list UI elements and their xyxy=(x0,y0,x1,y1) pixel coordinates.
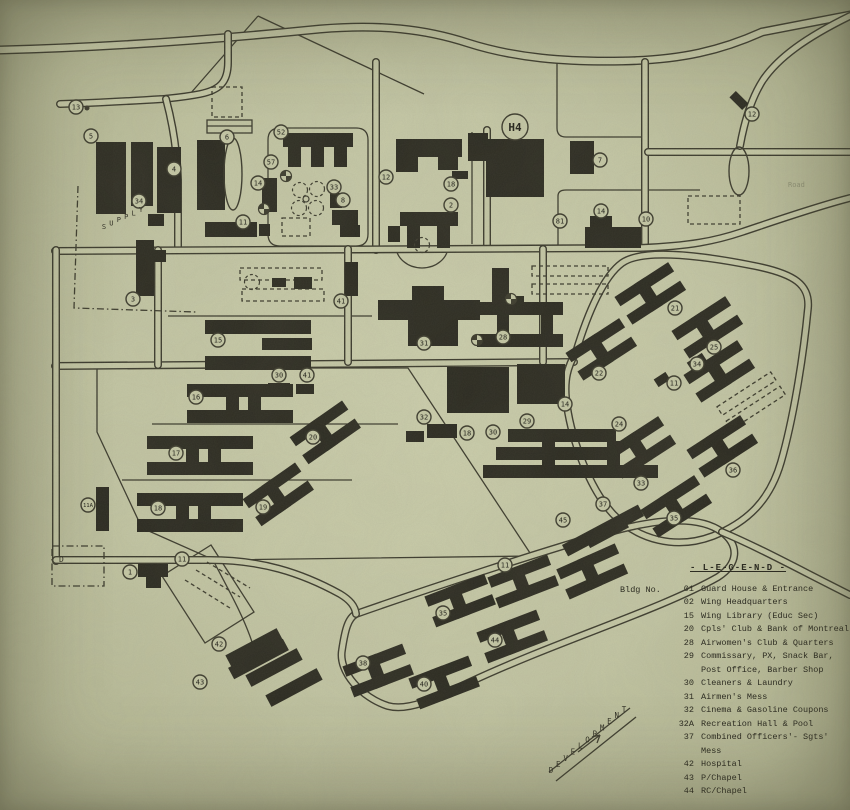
legend-bldg-name: Guard House & Entrance xyxy=(701,583,813,597)
legend-row: 31Airmen's Mess xyxy=(672,691,850,705)
legend-bldg-no: 01 xyxy=(672,583,694,597)
legend-bldg-no: 28 xyxy=(672,637,694,651)
legend-bldg-no: 30 xyxy=(672,677,694,691)
legend-bldg-no: 02 xyxy=(672,596,694,610)
legend-bldg-no: 20 xyxy=(672,623,694,637)
legend-bldg-name: Wing Headquarters xyxy=(701,596,788,610)
legend-bldg-no: 31 xyxy=(672,691,694,705)
legend-bldg-name: Recreation Hall & Pool xyxy=(701,718,813,732)
legend-bldg-name: RC/Chapel xyxy=(701,785,747,799)
legend-bldg-name: Airwomen's Club & Quarters xyxy=(701,637,834,651)
legend-bldg-name: Wing Library (Educ Sec) xyxy=(701,610,818,624)
legend-bldg-name: Commissary, PX, Snack Bar, Post Office, … xyxy=(701,650,834,677)
legend-bldg-name: Combined Officers'- Sgts' Mess xyxy=(701,731,850,758)
legend-row: 42Hospital xyxy=(672,758,850,772)
legend-row: 01Guard House & Entrance xyxy=(672,583,850,597)
legend-bldg-name: Cleaners & Laundry xyxy=(701,677,793,691)
legend-bldg-no: 32 xyxy=(672,704,694,718)
legend-row: 32ARecreation Hall & Pool xyxy=(672,718,850,732)
legend-bldg-no: 29 xyxy=(672,650,694,677)
legend-bldg-no: 32A xyxy=(672,718,694,732)
legend-bldg-name: Cinema & Gasoline Coupons xyxy=(701,704,829,718)
legend-bldg-name: Airmen's Mess xyxy=(701,691,767,705)
legend-bldg-no: 15 xyxy=(672,610,694,624)
legend-row: 29Commissary, PX, Snack Bar, Post Office… xyxy=(672,650,850,677)
legend-rows: 01Guard House & Entrance02Wing Headquart… xyxy=(672,583,850,799)
legend-row: 30Cleaners & Laundry xyxy=(672,677,850,691)
legend-row: 20Cpls' Club & Bank of Montreal xyxy=(672,623,850,637)
legend-bldg-no: 42 xyxy=(672,758,694,772)
legend-bldg-no: 37 xyxy=(672,731,694,758)
legend-row: 37Combined Officers'- Sgts' Mess xyxy=(672,731,850,758)
legend-bldg-no: 44 xyxy=(672,785,694,799)
legend-row: 43P/Chapel xyxy=(672,772,850,786)
legend-bldg-no: 43 xyxy=(672,772,694,786)
legend-bldg-name: Cpls' Club & Bank of Montreal xyxy=(701,623,849,637)
station-map-scan: 1354343611525714338121827811410124115312… xyxy=(0,0,850,810)
legend-bldg-name: Hospital xyxy=(701,758,742,772)
legend-row: 44RC/Chapel xyxy=(672,785,850,799)
legend-heading: Bldg No. xyxy=(620,584,661,598)
legend-row: 15Wing Library (Educ Sec) xyxy=(672,610,850,624)
legend-title: - L-E-G-E-N-D - xyxy=(690,562,850,576)
legend-bldg-name: P/Chapel xyxy=(701,772,742,786)
legend-row: 32Cinema & Gasoline Coupons xyxy=(672,704,850,718)
legend-panel: - L-E-G-E-N-D - Bldg No. 01Guard House &… xyxy=(606,562,850,799)
legend-row: 02Wing Headquarters xyxy=(672,596,850,610)
legend-row: 28Airwomen's Club & Quarters xyxy=(672,637,850,651)
